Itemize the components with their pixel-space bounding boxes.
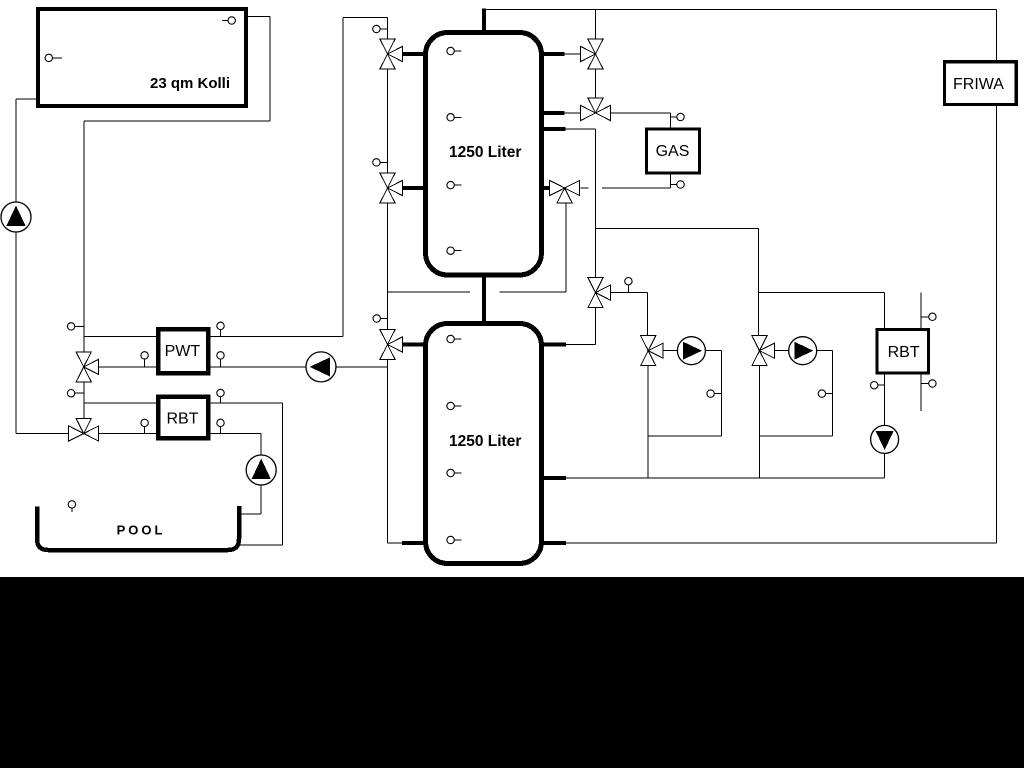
svg-text:PWT: PWT xyxy=(165,343,201,360)
svg-text:POOL: POOL xyxy=(117,523,166,538)
svg-text:RBT: RBT xyxy=(167,411,199,428)
svg-text:GAS: GAS xyxy=(656,143,690,160)
svg-text:23 qm Kolli: 23 qm Kolli xyxy=(150,75,230,92)
svg-text:1250 Liter: 1250 Liter xyxy=(449,433,521,450)
svg-text:1250 Liter: 1250 Liter xyxy=(449,144,521,161)
svg-text:FRIWA: FRIWA xyxy=(953,76,1004,93)
svg-text:RBT: RBT xyxy=(888,344,920,361)
